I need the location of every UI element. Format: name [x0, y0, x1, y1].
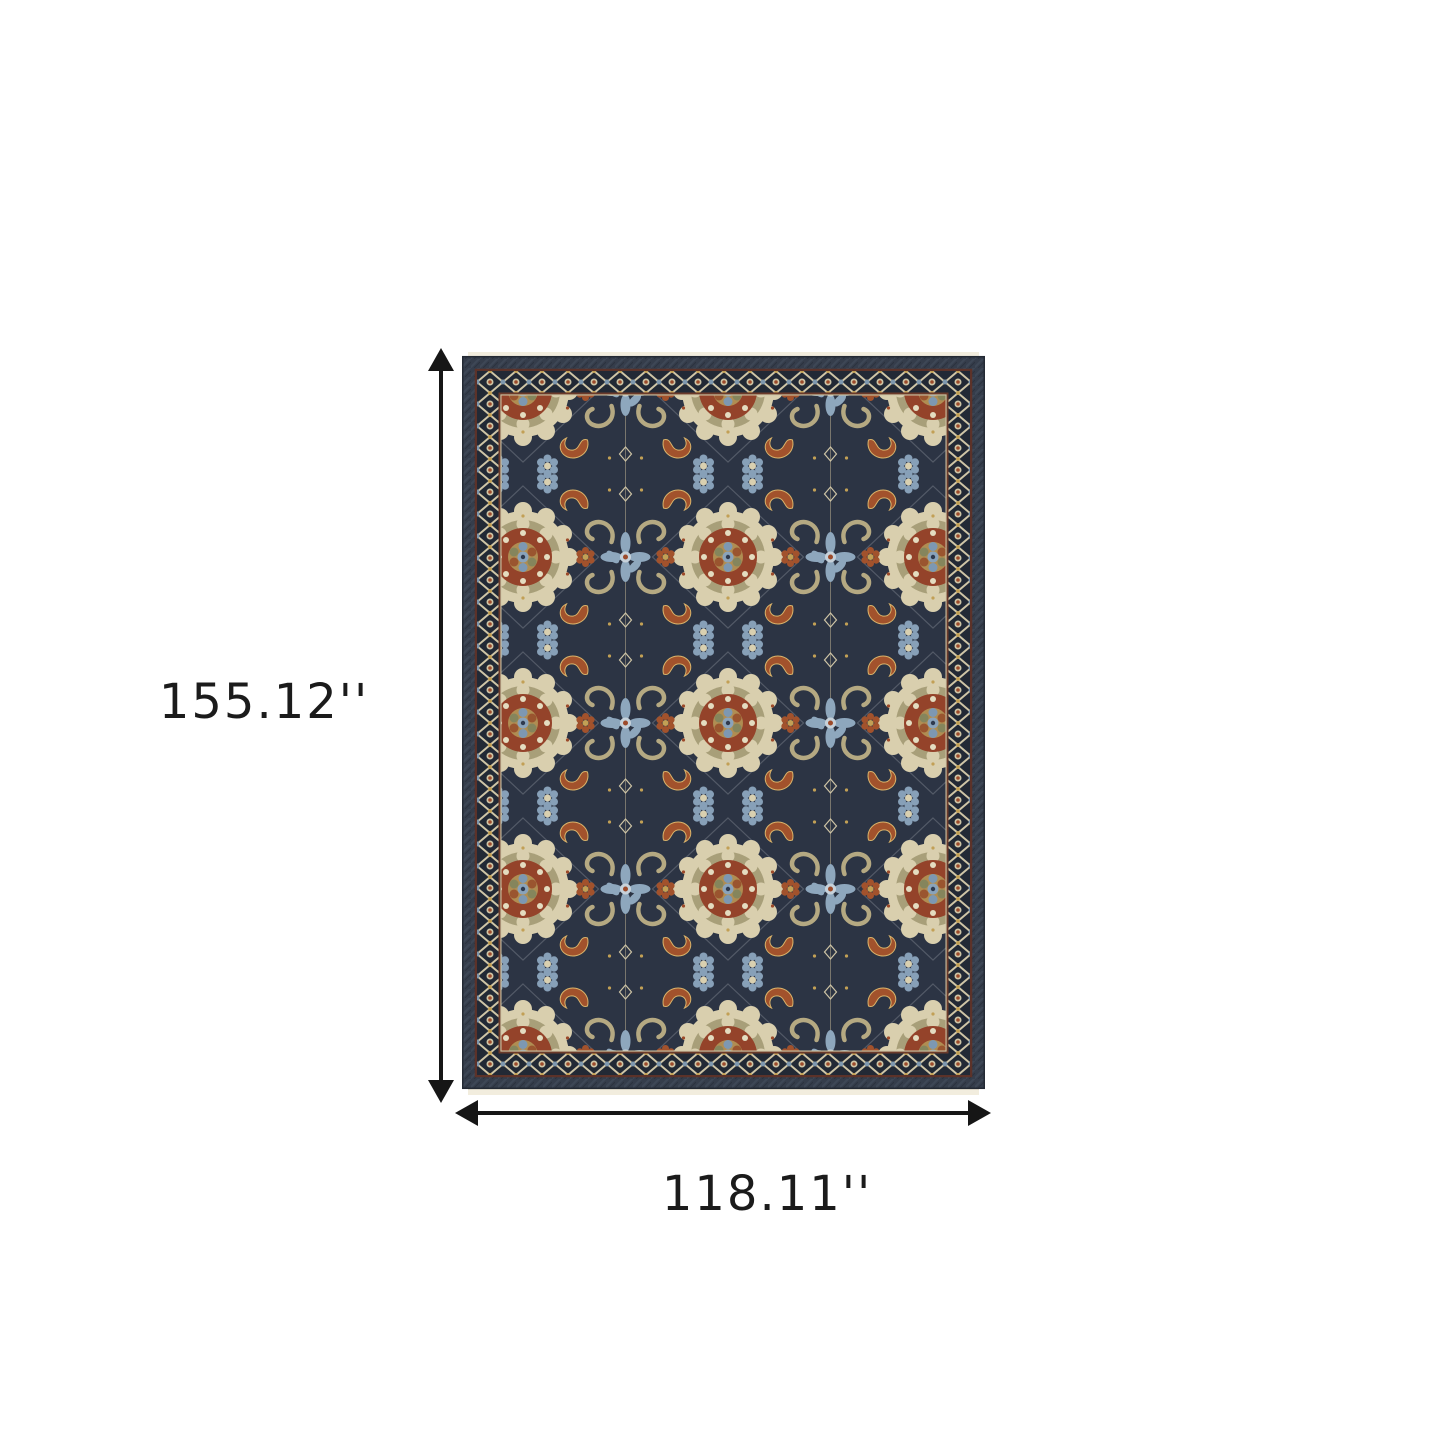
product-image-canvas: 155.12'' 118.11'' — [0, 0, 1445, 1445]
rug-field — [502, 396, 946, 1051]
width-dimension-label: 118.11'' — [634, 1166, 900, 1222]
arrow-down-icon — [428, 1080, 454, 1106]
rug-fringe-bottom — [468, 1089, 979, 1095]
height-dimension-label: 155.12'' — [128, 674, 400, 730]
height-arrow-line — [439, 360, 443, 1086]
width-arrow-line — [470, 1111, 972, 1115]
rug-image — [462, 350, 985, 1097]
arrow-right-icon — [968, 1100, 994, 1126]
rug-graphic — [462, 350, 985, 1097]
